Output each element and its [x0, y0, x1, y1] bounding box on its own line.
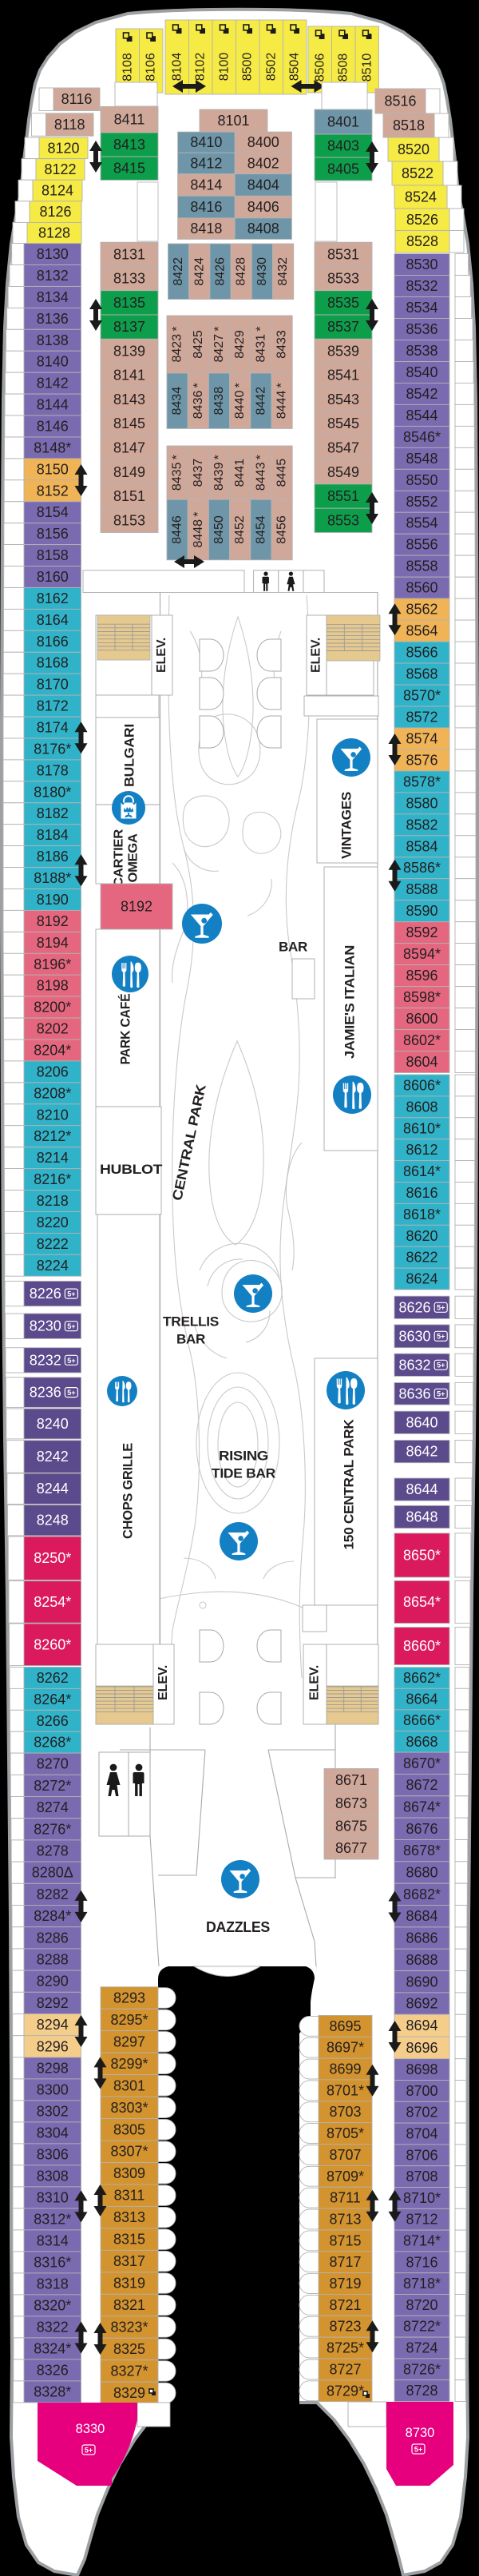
svg-text:8526: 8526: [406, 212, 438, 228]
svg-text:8630: 8630: [398, 1328, 430, 1344]
svg-text:OMEGA: OMEGA: [127, 833, 141, 882]
svg-text:8726*: 8726*: [403, 2361, 441, 2377]
svg-text:8194: 8194: [37, 935, 69, 951]
svg-text:8288: 8288: [37, 1952, 69, 1968]
svg-text:8654*: 8654*: [403, 1594, 441, 1610]
svg-text:8145: 8145: [113, 415, 145, 431]
svg-text:8182: 8182: [37, 805, 69, 821]
svg-text:8670*: 8670*: [403, 1755, 441, 1771]
svg-text:8594*: 8594*: [403, 946, 441, 962]
svg-text:8648: 8648: [406, 1509, 437, 1525]
svg-text:8570*: 8570*: [403, 688, 441, 704]
svg-text:8538: 8538: [406, 343, 437, 359]
svg-text:8204*: 8204*: [34, 1043, 71, 1059]
svg-text:8322: 8322: [37, 2319, 69, 2335]
svg-text:8178: 8178: [37, 762, 69, 778]
svg-text:8442: 8442: [254, 387, 267, 415]
svg-text:8415: 8415: [113, 161, 145, 177]
svg-text:8636: 8636: [398, 1385, 430, 1401]
svg-text:5+: 5+: [67, 1389, 75, 1397]
svg-text:8606*: 8606*: [403, 1078, 441, 1094]
svg-text:8725*: 8725*: [327, 2340, 364, 2356]
svg-text:8329: 8329: [113, 2385, 145, 2401]
svg-text:5+: 5+: [437, 1390, 445, 1398]
svg-text:PARK CAFÉ: PARK CAFÉ: [118, 994, 133, 1065]
svg-text:8270: 8270: [37, 1756, 69, 1772]
svg-text:ELEV.: ELEV.: [308, 1665, 322, 1700]
svg-text:8286: 8286: [37, 1930, 69, 1946]
svg-text:5+: 5+: [437, 1333, 445, 1341]
svg-text:8429: 8429: [233, 330, 247, 359]
svg-text:8137: 8137: [113, 319, 145, 335]
svg-text:8446: 8446: [171, 515, 184, 544]
svg-text:8408: 8408: [247, 221, 279, 237]
svg-text:8126: 8126: [39, 204, 71, 220]
svg-text:8306: 8306: [37, 2146, 69, 2162]
svg-text:8232: 8232: [30, 1352, 61, 1368]
svg-text:8324*: 8324*: [34, 2340, 71, 2356]
svg-text:8576: 8576: [406, 752, 437, 768]
svg-text:8131: 8131: [113, 246, 145, 262]
svg-text:8678*: 8678*: [403, 1843, 441, 1858]
svg-text:8298: 8298: [37, 2060, 69, 2076]
svg-text:8600: 8600: [406, 1011, 437, 1027]
svg-text:8120: 8120: [47, 140, 79, 156]
svg-text:8297: 8297: [113, 2033, 145, 2049]
svg-text:8533: 8533: [327, 271, 359, 287]
svg-text:8316*: 8316*: [34, 2254, 71, 2270]
svg-text:8220: 8220: [37, 1214, 69, 1230]
svg-text:8700: 8700: [406, 2083, 437, 2099]
svg-text:8452: 8452: [233, 515, 247, 544]
svg-text:8677: 8677: [335, 1840, 367, 1856]
svg-text:8152: 8152: [37, 483, 69, 499]
svg-text:8294: 8294: [37, 2017, 69, 2033]
svg-text:8168: 8168: [37, 655, 69, 671]
svg-text:8278: 8278: [37, 1843, 69, 1859]
svg-text:8592: 8592: [406, 924, 437, 940]
svg-text:8300: 8300: [37, 2081, 69, 2097]
svg-text:8172: 8172: [37, 698, 69, 714]
svg-text:8290: 8290: [37, 1974, 69, 1990]
svg-text:8708: 8708: [406, 2169, 437, 2184]
svg-text:8568: 8568: [406, 666, 437, 682]
svg-text:8553: 8553: [327, 512, 359, 528]
svg-text:8280Δ: 8280Δ: [32, 1865, 73, 1881]
svg-text:8440 *: 8440 *: [233, 383, 247, 419]
svg-text:8130: 8130: [37, 246, 69, 262]
svg-text:8158: 8158: [37, 547, 69, 563]
svg-text:8711: 8711: [330, 2190, 361, 2206]
svg-text:8445: 8445: [275, 459, 289, 487]
svg-text:ELEV.: ELEV.: [155, 638, 168, 673]
svg-text:8206: 8206: [37, 1063, 69, 1079]
svg-text:8530: 8530: [406, 256, 437, 272]
svg-text:8664: 8664: [406, 1691, 437, 1707]
svg-text:8540: 8540: [406, 364, 437, 380]
svg-text:5+: 5+: [67, 1290, 75, 1298]
svg-text:8146: 8146: [37, 419, 69, 435]
svg-text:8236: 8236: [30, 1385, 61, 1401]
svg-text:8190: 8190: [37, 892, 69, 908]
svg-text:8284*: 8284*: [34, 1908, 71, 1924]
svg-text:8612: 8612: [406, 1142, 437, 1158]
svg-text:8260*: 8260*: [34, 1636, 71, 1652]
svg-text:8544: 8544: [406, 407, 437, 423]
svg-text:8690: 8690: [406, 1974, 437, 1990]
svg-text:8704: 8704: [406, 2126, 437, 2142]
svg-text:8616: 8616: [406, 1185, 437, 1201]
svg-text:8504: 8504: [288, 53, 302, 81]
svg-text:8668: 8668: [406, 1734, 437, 1750]
svg-text:8401: 8401: [327, 114, 359, 130]
svg-text:8712: 8712: [406, 2212, 437, 2228]
svg-text:RISING: RISING: [219, 1449, 268, 1464]
svg-text:8660*: 8660*: [403, 1638, 441, 1654]
svg-text:8304: 8304: [37, 2125, 69, 2141]
svg-text:8272*: 8272*: [34, 1778, 71, 1794]
svg-text:8705*: 8705*: [327, 2125, 364, 2141]
svg-text:8644: 8644: [406, 1481, 437, 1497]
svg-text:8604: 8604: [406, 1054, 437, 1070]
svg-text:8516: 8516: [384, 93, 416, 109]
svg-text:8198: 8198: [37, 978, 69, 994]
svg-text:8673: 8673: [335, 1795, 367, 1811]
svg-text:8713: 8713: [329, 2212, 361, 2228]
svg-text:8319: 8319: [113, 2276, 145, 2292]
svg-text:8552: 8552: [406, 494, 437, 510]
svg-text:8602*: 8602*: [403, 1032, 441, 1048]
svg-text:5+: 5+: [437, 1304, 445, 1312]
svg-text:8564: 8564: [406, 623, 437, 639]
svg-text:8176*: 8176*: [34, 741, 71, 757]
svg-text:5+: 5+: [414, 2445, 422, 2453]
svg-text:8439 *: 8439 *: [212, 455, 226, 491]
svg-text:8454: 8454: [254, 515, 267, 544]
svg-text:8133: 8133: [113, 271, 145, 287]
svg-text:8144: 8144: [37, 397, 69, 413]
svg-text:8418: 8418: [190, 221, 222, 237]
svg-text:8566: 8566: [406, 645, 437, 661]
svg-text:8542: 8542: [406, 386, 437, 402]
svg-text:8720: 8720: [406, 2297, 437, 2313]
svg-text:8730: 8730: [406, 2426, 435, 2440]
svg-text:8590: 8590: [406, 903, 437, 919]
svg-text:5+: 5+: [67, 1357, 75, 1365]
svg-text:8242: 8242: [37, 1449, 69, 1465]
svg-text:8662*: 8662*: [403, 1670, 441, 1686]
svg-text:8714*: 8714*: [403, 2233, 441, 2249]
svg-text:8292: 8292: [37, 1995, 69, 2011]
svg-text:8682*: 8682*: [403, 1886, 441, 1902]
svg-text:8124: 8124: [42, 183, 73, 199]
svg-text:8624: 8624: [406, 1271, 437, 1287]
svg-text:8642: 8642: [406, 1444, 437, 1460]
svg-text:8715: 8715: [329, 2232, 361, 2248]
svg-text:8543: 8543: [327, 392, 359, 407]
svg-text:8422: 8422: [172, 257, 185, 286]
svg-text:8153: 8153: [113, 512, 145, 528]
svg-text:8142: 8142: [37, 376, 69, 392]
svg-text:8414: 8414: [190, 177, 222, 193]
svg-text:8435 *: 8435 *: [171, 455, 184, 491]
svg-text:8150: 8150: [37, 461, 69, 477]
svg-text:8423 *: 8423 *: [171, 326, 184, 362]
svg-text:8701*: 8701*: [327, 2082, 364, 2098]
svg-text:VINTAGES: VINTAGES: [339, 792, 354, 859]
svg-text:8676: 8676: [406, 1821, 437, 1837]
svg-text:8305: 8305: [113, 2121, 145, 2137]
svg-text:8317: 8317: [113, 2253, 145, 2269]
svg-text:5+: 5+: [437, 1362, 445, 1369]
svg-text:8618*: 8618*: [403, 1207, 441, 1222]
svg-text:8531: 8531: [327, 246, 359, 262]
svg-text:8520: 8520: [398, 141, 430, 157]
svg-text:8327*: 8327*: [110, 2363, 148, 2379]
svg-text:5+: 5+: [85, 2446, 93, 2454]
svg-text:8164: 8164: [37, 612, 69, 628]
svg-text:8500: 8500: [241, 53, 255, 81]
svg-text:8588: 8588: [406, 881, 437, 897]
svg-text:8412: 8412: [190, 155, 222, 171]
svg-text:8550: 8550: [406, 472, 437, 488]
svg-text:8296: 8296: [37, 2038, 69, 2054]
svg-text:JAMIE'S ITALIAN: JAMIE'S ITALIAN: [342, 945, 358, 1059]
svg-text:8666*: 8666*: [403, 1712, 441, 1728]
svg-text:8244: 8244: [37, 1481, 69, 1497]
svg-text:8532: 8532: [406, 278, 437, 294]
svg-text:8545: 8545: [327, 415, 359, 431]
svg-text:8698: 8698: [406, 2061, 437, 2077]
svg-text:8556: 8556: [406, 537, 437, 553]
svg-text:8650*: 8650*: [403, 1548, 441, 1564]
svg-text:8549: 8549: [327, 464, 359, 480]
svg-text:8456: 8456: [275, 515, 289, 544]
svg-text:8308: 8308: [37, 2168, 69, 2184]
svg-text:8254*: 8254*: [34, 1594, 71, 1610]
svg-text:8537: 8537: [327, 319, 359, 335]
svg-text:8309: 8309: [113, 2165, 145, 2181]
svg-text:8534: 8534: [406, 300, 437, 316]
svg-text:8640: 8640: [406, 1414, 437, 1430]
svg-text:8210: 8210: [37, 1107, 69, 1123]
svg-text:8574: 8574: [406, 730, 437, 746]
svg-text:8716: 8716: [406, 2254, 437, 2270]
svg-text:8400: 8400: [247, 134, 279, 150]
svg-text:8610*: 8610*: [403, 1120, 441, 1136]
svg-text:8436 *: 8436 *: [192, 383, 205, 419]
svg-text:8108: 8108: [121, 53, 134, 81]
svg-text:8149: 8149: [113, 464, 145, 480]
svg-text:8717: 8717: [329, 2254, 361, 2270]
svg-text:8558: 8558: [406, 559, 437, 574]
svg-text:8528: 8528: [406, 233, 438, 249]
svg-text:8554: 8554: [406, 515, 437, 531]
svg-text:8718*: 8718*: [403, 2276, 441, 2292]
svg-text:8156: 8156: [37, 526, 69, 542]
svg-text:8208*: 8208*: [34, 1085, 71, 1101]
svg-text:BAR: BAR: [279, 940, 307, 955]
svg-text:8518: 8518: [393, 117, 425, 133]
svg-text:8596: 8596: [406, 968, 437, 984]
svg-text:8218: 8218: [37, 1193, 69, 1209]
svg-text:8222: 8222: [37, 1236, 69, 1252]
svg-text:8584: 8584: [406, 838, 437, 854]
svg-text:8122: 8122: [44, 161, 76, 177]
svg-text:8184: 8184: [37, 827, 69, 843]
svg-text:8703: 8703: [329, 2104, 361, 2120]
svg-text:8674*: 8674*: [403, 1799, 441, 1815]
svg-text:8312*: 8312*: [34, 2211, 71, 2227]
svg-text:8202: 8202: [37, 1021, 69, 1037]
svg-text:8307*: 8307*: [110, 2144, 148, 2160]
svg-text:8151: 8151: [113, 488, 145, 504]
svg-text:8598*: 8598*: [403, 989, 441, 1005]
svg-text:8535: 8535: [327, 295, 359, 311]
svg-text:8160: 8160: [37, 569, 69, 585]
svg-text:8416: 8416: [190, 199, 222, 215]
svg-text:8709*: 8709*: [327, 2169, 364, 2184]
svg-text:8303*: 8303*: [110, 2100, 148, 2116]
svg-text:8282: 8282: [37, 1886, 69, 1902]
svg-text:8328*: 8328*: [34, 2383, 71, 2399]
svg-text:8723: 8723: [329, 2319, 361, 2335]
svg-text:8106: 8106: [144, 53, 158, 81]
svg-text:CARTIER: CARTIER: [113, 829, 126, 887]
svg-text:8443 *: 8443 *: [254, 455, 267, 491]
svg-text:8325: 8325: [113, 2341, 145, 2357]
svg-text:8692: 8692: [406, 1996, 437, 2012]
svg-text:8608: 8608: [406, 1099, 437, 1115]
svg-text:8536: 8536: [406, 321, 437, 337]
svg-text:8560: 8560: [406, 580, 437, 596]
svg-text:BAR: BAR: [176, 1332, 205, 1347]
svg-text:8632: 8632: [398, 1357, 430, 1373]
svg-text:8101: 8101: [217, 113, 249, 129]
svg-text:TIDE BAR: TIDE BAR: [212, 1466, 275, 1481]
svg-text:8428: 8428: [235, 257, 248, 286]
svg-text:8510: 8510: [360, 54, 374, 82]
svg-text:8438: 8438: [212, 387, 226, 415]
svg-text:8699: 8699: [329, 2061, 361, 2077]
svg-text:8548: 8548: [406, 451, 437, 467]
svg-text:8448 *: 8448 *: [192, 511, 205, 547]
svg-text:8506: 8506: [313, 54, 327, 82]
svg-text:8502: 8502: [264, 53, 278, 81]
svg-text:8140: 8140: [37, 354, 69, 370]
svg-text:8268*: 8268*: [34, 1735, 71, 1751]
svg-text:DAZZLES: DAZZLES: [206, 1919, 270, 1935]
svg-text:8143: 8143: [113, 392, 145, 407]
svg-text:8547: 8547: [327, 440, 359, 456]
svg-text:8695: 8695: [329, 2018, 361, 2034]
svg-text:8702: 8702: [406, 2105, 437, 2121]
svg-text:8411: 8411: [114, 112, 145, 128]
svg-text:8562: 8562: [406, 602, 437, 618]
svg-text:HUBLOT: HUBLOT: [100, 1163, 162, 1177]
svg-text:8141: 8141: [113, 368, 145, 384]
svg-text:8524: 8524: [405, 189, 437, 205]
svg-text:8323*: 8323*: [110, 2320, 148, 2335]
svg-text:8139: 8139: [113, 343, 145, 359]
svg-text:8541: 8541: [327, 368, 359, 384]
svg-text:8230: 8230: [30, 1318, 61, 1334]
svg-text:8313: 8313: [113, 2209, 145, 2225]
svg-text:8132: 8132: [37, 268, 69, 284]
svg-text:8162: 8162: [37, 590, 69, 606]
svg-text:8170: 8170: [37, 677, 69, 693]
svg-text:8710*: 8710*: [403, 2190, 441, 2206]
svg-text:8186: 8186: [37, 849, 69, 865]
svg-text:8522: 8522: [402, 165, 433, 181]
svg-text:8706: 8706: [406, 2147, 437, 2163]
svg-text:8431 *: 8431 *: [254, 326, 267, 362]
svg-text:8586*: 8586*: [403, 860, 441, 876]
svg-text:8430: 8430: [255, 257, 269, 286]
svg-text:8295*: 8295*: [110, 2012, 148, 2028]
svg-text:8425: 8425: [192, 330, 205, 359]
svg-text:8578*: 8578*: [403, 773, 441, 789]
svg-text:8582: 8582: [406, 817, 437, 833]
svg-text:8224: 8224: [37, 1258, 69, 1274]
svg-text:8226: 8226: [30, 1286, 61, 1302]
svg-text:5+: 5+: [67, 1322, 75, 1330]
svg-text:8320*: 8320*: [34, 2297, 71, 2313]
svg-text:8424: 8424: [192, 257, 206, 286]
svg-text:8135: 8135: [113, 295, 145, 311]
svg-text:8437: 8437: [192, 459, 205, 487]
svg-text:8180*: 8180*: [34, 784, 71, 800]
svg-text:8276*: 8276*: [34, 1821, 71, 1837]
svg-text:8427 *: 8427 *: [212, 326, 226, 362]
svg-text:8250*: 8250*: [34, 1550, 71, 1566]
svg-text:8434: 8434: [171, 387, 184, 415]
svg-text:CHOPS GRILLE: CHOPS GRILLE: [121, 1443, 136, 1539]
svg-text:8240: 8240: [37, 1416, 69, 1432]
svg-text:8508: 8508: [337, 54, 350, 82]
svg-text:8707: 8707: [329, 2147, 361, 2163]
svg-text:8404: 8404: [247, 177, 279, 193]
svg-text:8136: 8136: [37, 311, 69, 327]
svg-text:8696: 8696: [406, 2040, 437, 2056]
svg-text:8100: 8100: [217, 53, 231, 81]
svg-text:8626: 8626: [398, 1299, 430, 1315]
svg-text:8580: 8580: [406, 795, 437, 811]
svg-text:8432: 8432: [276, 257, 290, 286]
svg-text:8721: 8721: [329, 2297, 361, 2313]
svg-text:ELEV.: ELEV.: [310, 638, 323, 673]
svg-text:8551: 8551: [327, 488, 359, 504]
svg-text:8147: 8147: [113, 440, 145, 456]
svg-text:8546*: 8546*: [403, 429, 441, 445]
svg-text:8620: 8620: [406, 1228, 437, 1244]
svg-text:8426: 8426: [214, 257, 228, 286]
svg-text:8722*: 8722*: [403, 2319, 441, 2335]
svg-text:8148*: 8148*: [34, 439, 71, 455]
svg-text:8248: 8248: [37, 1513, 69, 1529]
svg-text:8102: 8102: [194, 53, 208, 81]
svg-text:8200*: 8200*: [34, 1000, 71, 1016]
svg-text:8450: 8450: [212, 515, 226, 544]
svg-text:8672: 8672: [406, 1777, 437, 1793]
svg-text:8192: 8192: [37, 913, 69, 929]
svg-text:8680: 8680: [406, 1865, 437, 1881]
svg-text:8264*: 8264*: [34, 1691, 71, 1707]
svg-text:TRELLIS: TRELLIS: [163, 1314, 219, 1330]
svg-text:BULGARI: BULGARI: [122, 724, 137, 787]
svg-text:8318: 8318: [37, 2276, 69, 2292]
svg-text:8406: 8406: [247, 199, 279, 215]
